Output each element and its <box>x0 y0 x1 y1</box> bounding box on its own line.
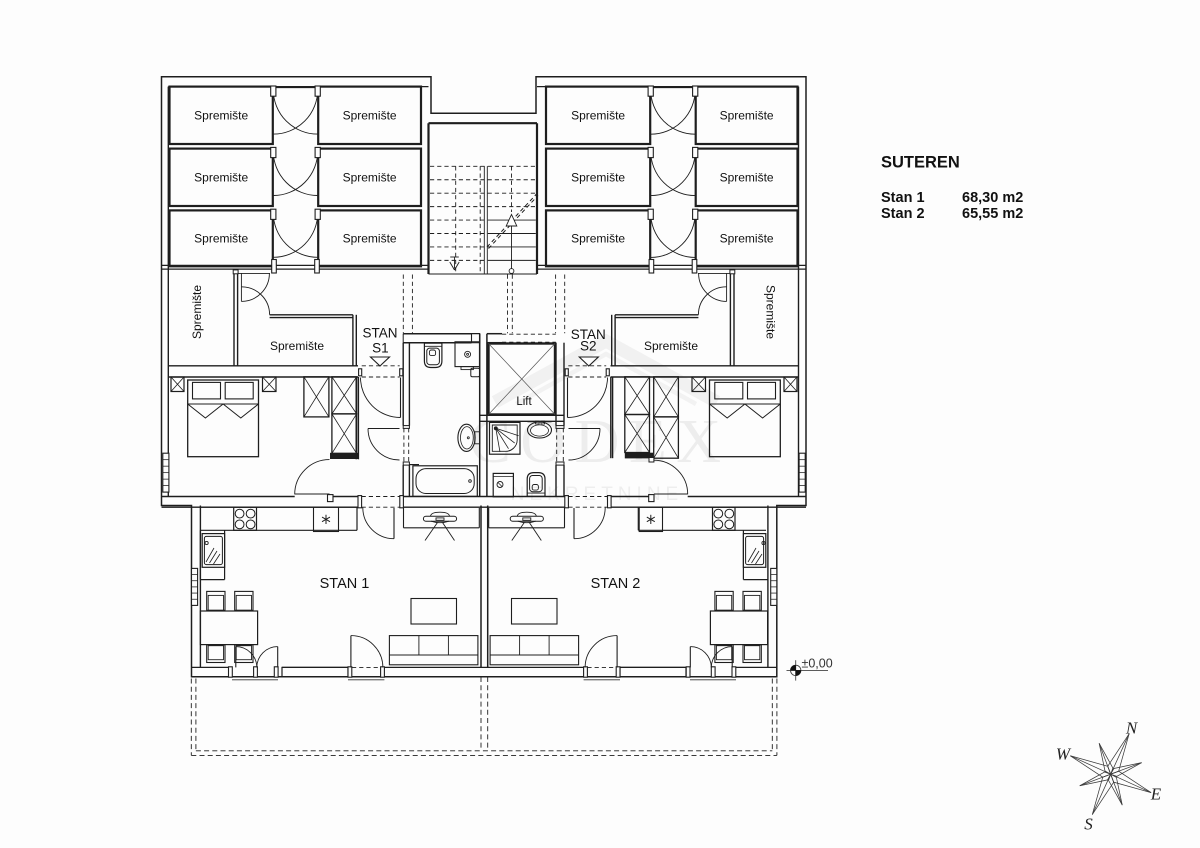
svg-text:N: N <box>1125 719 1139 738</box>
svg-text:SUTEREN: SUTEREN <box>881 154 960 172</box>
svg-text:Spremište: Spremište <box>571 109 625 123</box>
svg-text:Stan 2: Stan 2 <box>881 206 925 222</box>
svg-text:Spremište: Spremište <box>194 171 248 185</box>
svg-text:STAN: STAN <box>362 326 397 341</box>
svg-text:Spremište: Spremište <box>194 109 248 123</box>
svg-text:S2: S2 <box>580 339 597 354</box>
svg-text:Lift: Lift <box>516 396 532 408</box>
svg-text:Spremište: Spremište <box>270 339 324 353</box>
svg-text:65,55 m2: 65,55 m2 <box>962 206 1023 222</box>
svg-text:STAN 1: STAN 1 <box>320 576 370 592</box>
svg-text:Spremište: Spremište <box>343 109 397 123</box>
svg-text:CODEX: CODEX <box>469 408 730 476</box>
svg-text:Spremište: Spremište <box>571 171 625 185</box>
svg-text:E: E <box>1150 785 1162 804</box>
svg-text:W: W <box>1056 745 1072 764</box>
svg-text:Spremište: Spremište <box>720 109 774 123</box>
svg-text:S1: S1 <box>372 341 389 356</box>
svg-text:Spremište: Spremište <box>644 339 698 353</box>
svg-text:STAN 2: STAN 2 <box>591 576 641 592</box>
svg-text:S: S <box>1084 815 1093 834</box>
svg-text:68,30 m2: 68,30 m2 <box>962 190 1023 206</box>
svg-text:Spremište: Spremište <box>194 232 248 246</box>
svg-text:Spremište: Spremište <box>571 232 625 246</box>
svg-text:±0,00: ±0,00 <box>802 657 833 671</box>
svg-text:Spremište: Spremište <box>764 285 778 339</box>
svg-text:Spremište: Spremište <box>190 285 204 339</box>
svg-text:Spremište: Spremište <box>720 232 774 246</box>
svg-text:Spremište: Spremište <box>343 171 397 185</box>
svg-text:Spremište: Spremište <box>720 171 774 185</box>
svg-text:Spremište: Spremište <box>343 232 397 246</box>
svg-text:Stan 1: Stan 1 <box>881 190 925 206</box>
